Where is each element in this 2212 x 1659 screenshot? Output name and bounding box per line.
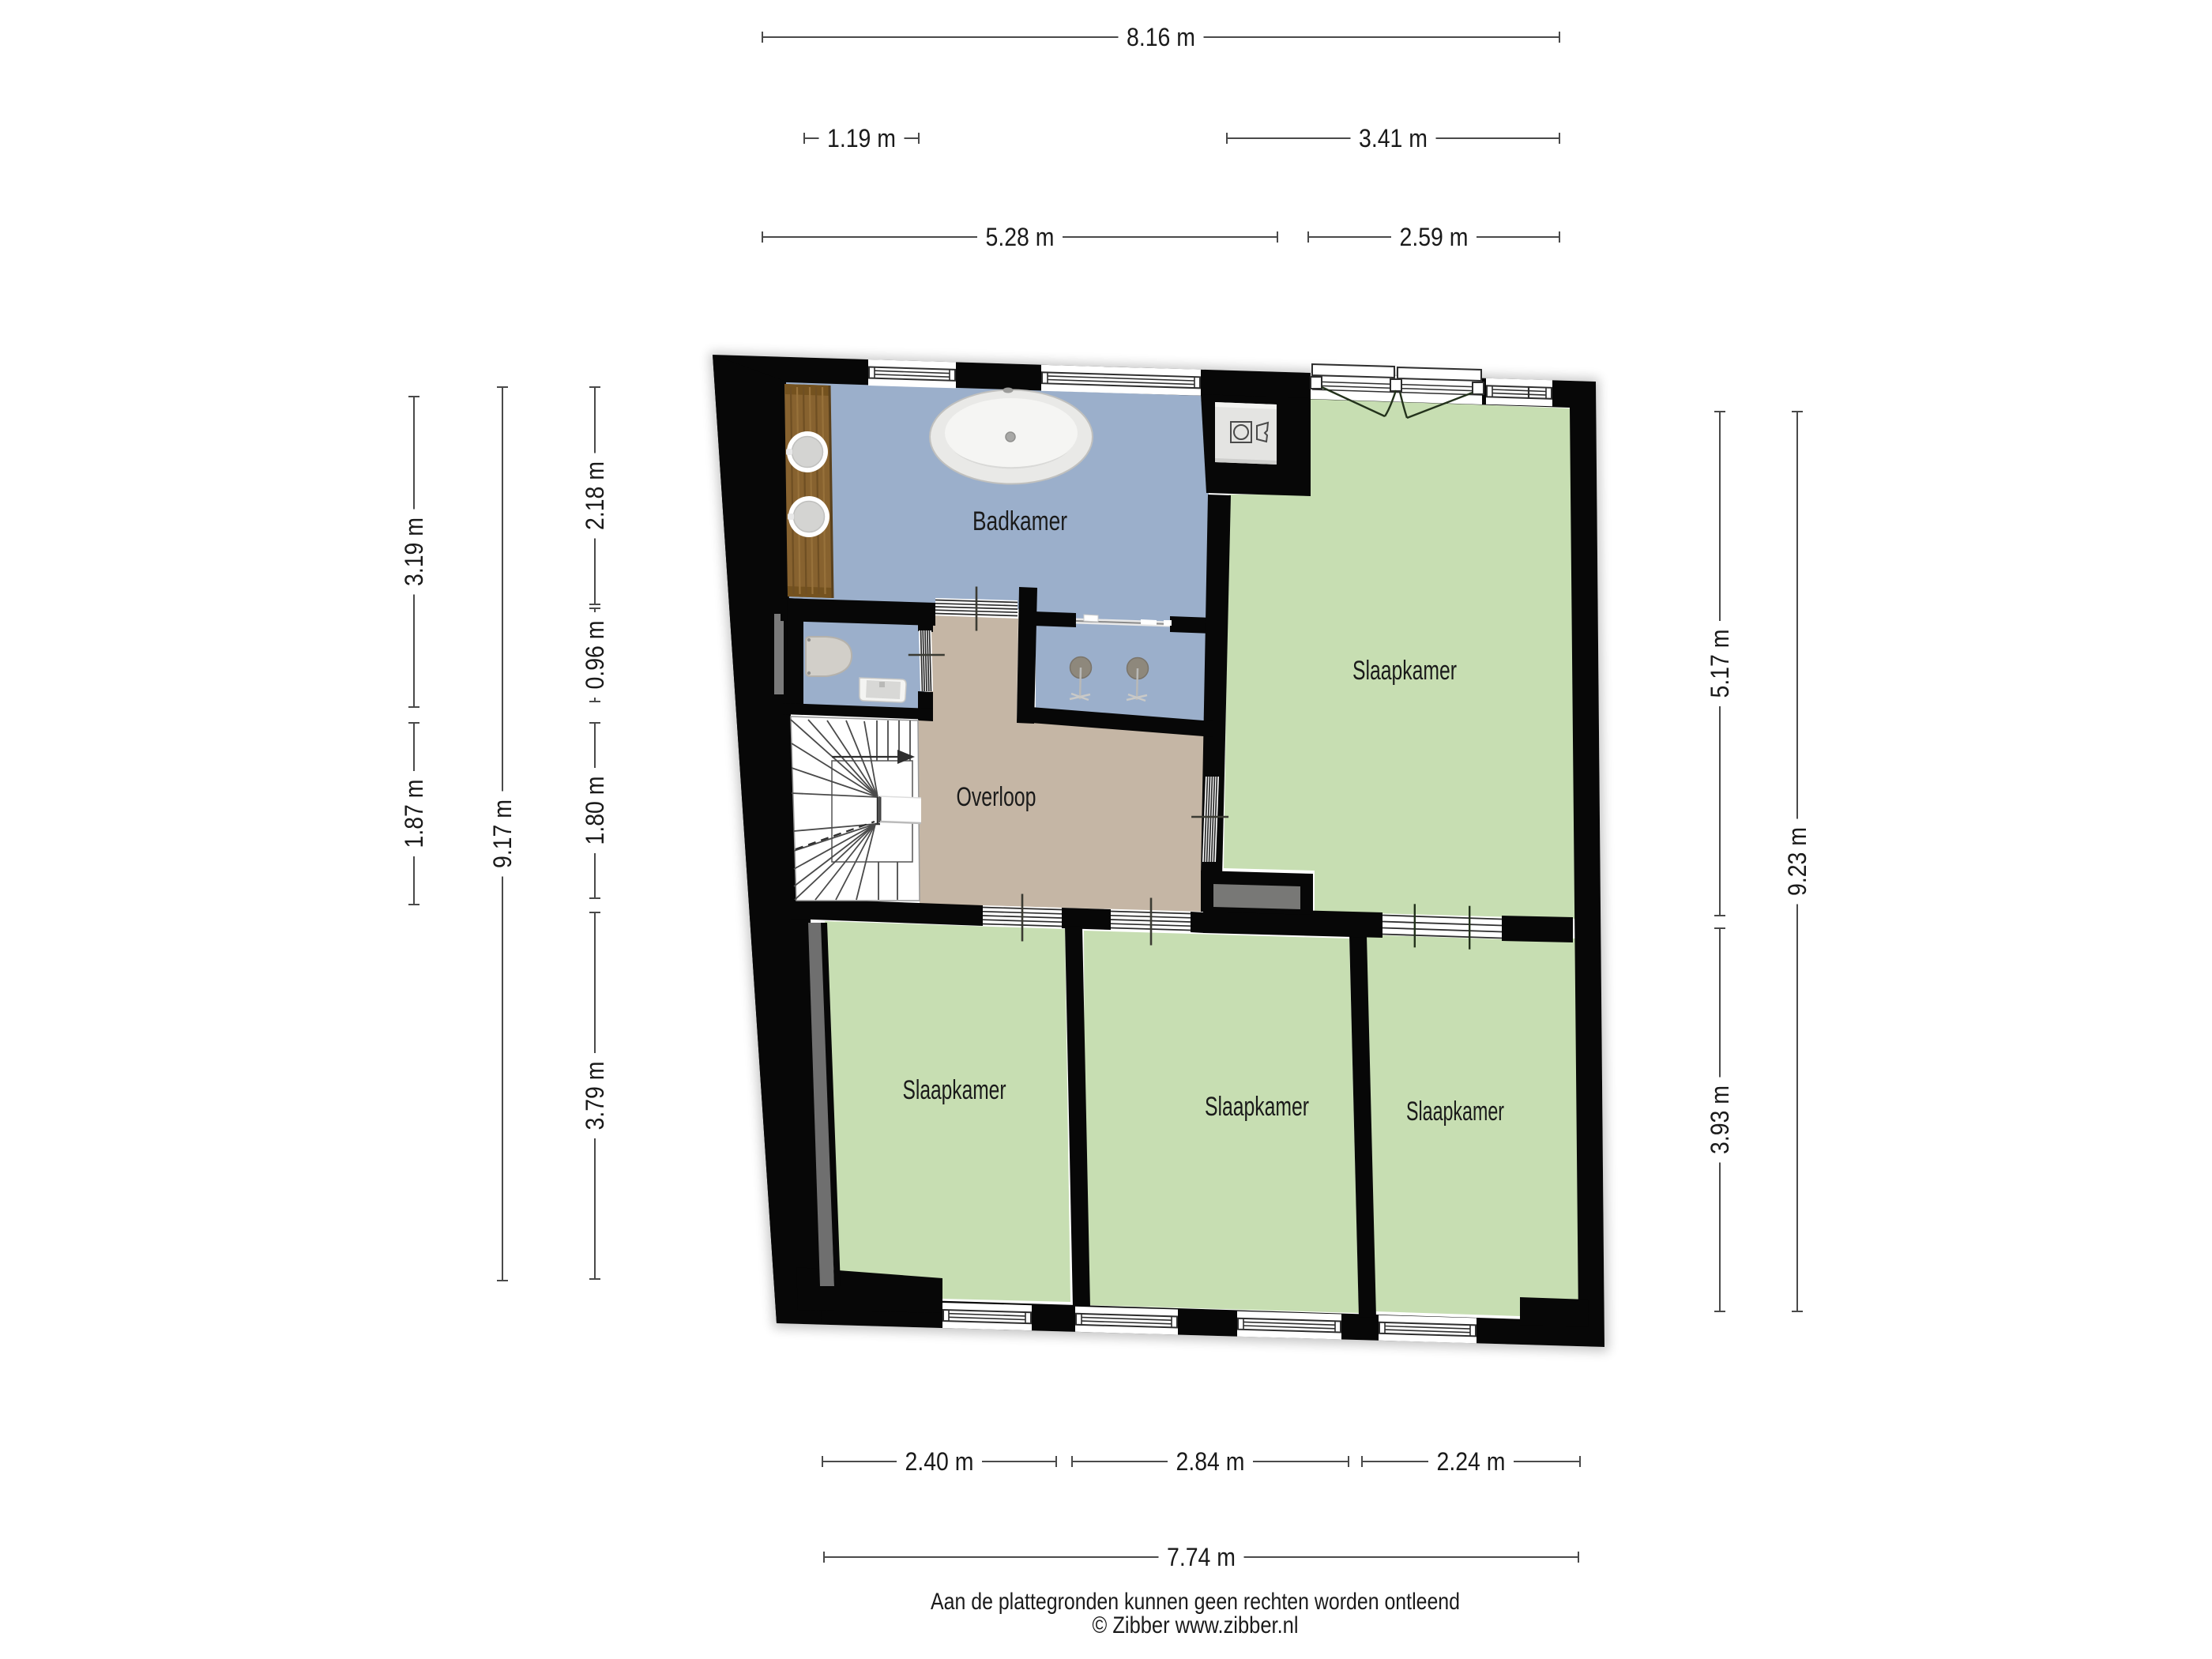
svg-text:2.40 m: 2.40 m — [905, 1447, 974, 1476]
svg-text:Overloop: Overloop — [957, 782, 1036, 812]
svg-text:3.79 m: 3.79 m — [581, 1062, 609, 1130]
svg-text:1.80 m: 1.80 m — [581, 777, 609, 845]
svg-text:5.28 m: 5.28 m — [986, 223, 1055, 251]
svg-text:Slaapkamer: Slaapkamer — [903, 1075, 1006, 1105]
svg-text:5.17 m: 5.17 m — [1706, 630, 1734, 698]
svg-text:3.41 m: 3.41 m — [1359, 124, 1428, 152]
svg-text:Badkamer: Badkamer — [972, 506, 1067, 536]
svg-text:© Zibber www.zibber.nl: © Zibber www.zibber.nl — [1093, 1612, 1299, 1638]
svg-text:3.19 m: 3.19 m — [400, 517, 428, 586]
svg-text:9.17 m: 9.17 m — [488, 799, 517, 868]
svg-text:Aan de plattegronden kunnen ge: Aan de plattegronden kunnen geen rechten… — [931, 1589, 1460, 1615]
svg-text:2.84 m: 2.84 m — [1176, 1447, 1245, 1476]
svg-text:3.93 m: 3.93 m — [1706, 1085, 1734, 1154]
svg-text:2.18 m: 2.18 m — [581, 461, 609, 530]
svg-text:Slaapkamer: Slaapkamer — [1406, 1097, 1504, 1127]
svg-text:1.87 m: 1.87 m — [400, 780, 428, 848]
svg-text:Slaapkamer: Slaapkamer — [1205, 1092, 1309, 1122]
svg-text:0.96 m: 0.96 m — [581, 621, 609, 690]
svg-text:1.19 m: 1.19 m — [827, 124, 896, 152]
svg-text:7.74 m: 7.74 m — [1167, 1543, 1236, 1571]
svg-text:9.23 m: 9.23 m — [1783, 827, 1811, 896]
svg-text:8.16 m: 8.16 m — [1127, 23, 1195, 51]
svg-text:2.24 m: 2.24 m — [1437, 1447, 1506, 1476]
svg-text:2.59 m: 2.59 m — [1400, 223, 1469, 251]
svg-text:Slaapkamer: Slaapkamer — [1352, 656, 1457, 686]
